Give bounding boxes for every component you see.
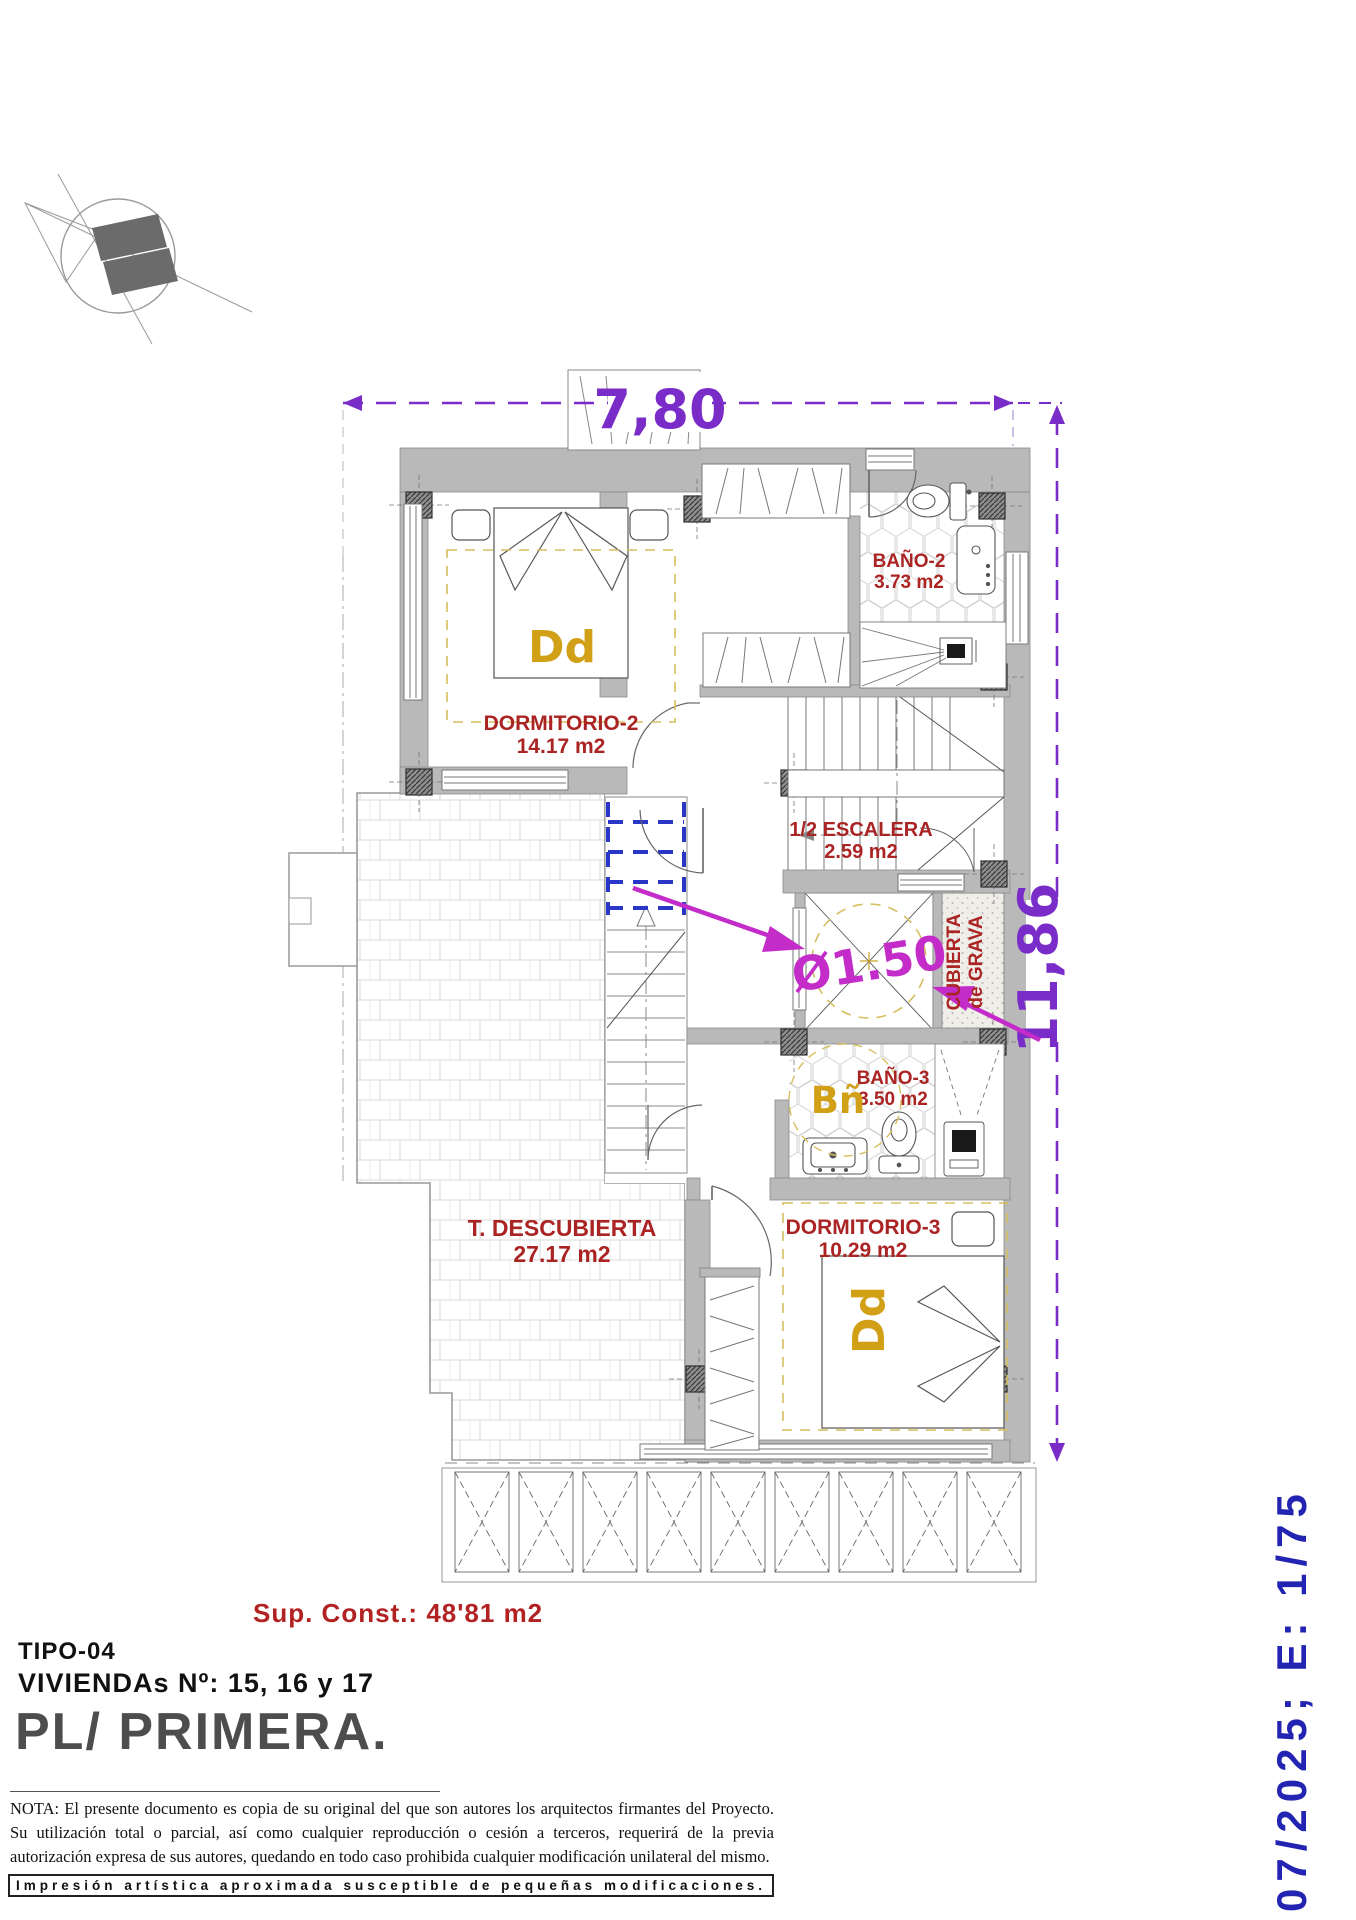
room-area-bano3: 3.50 m2 <box>858 1089 928 1110</box>
wardrobe <box>702 464 850 518</box>
legal-note: NOTA: El presente documento es copia de … <box>10 1797 774 1869</box>
tag-bano3: Bñ <box>811 1079 866 1122</box>
sink-bano3 <box>803 1138 867 1174</box>
room-label-dormitorio2: DORMITORIO-2 <box>484 712 639 735</box>
room-label-bano2: BAÑO-2 <box>873 550 946 572</box>
window <box>1006 552 1028 644</box>
toilet-bano2 <box>907 483 971 520</box>
shower-bano2 <box>860 622 1006 688</box>
room-area-bano2: 3.73 m2 <box>874 572 944 593</box>
window <box>640 1444 992 1459</box>
nightstand <box>630 510 668 540</box>
north-arrow-icon <box>25 174 252 344</box>
sink-vanity-bano2 <box>957 526 995 594</box>
window <box>404 504 422 700</box>
shower-bano3 <box>935 1044 1004 1178</box>
closet-dormitorio3 <box>700 1268 760 1450</box>
window <box>866 449 914 470</box>
wardrobe <box>703 633 850 687</box>
dimension-width-label: 7,80 <box>593 378 726 441</box>
nightstand <box>452 510 490 540</box>
room-area-dormitorio2: 14.17 m2 <box>517 735 606 758</box>
nightstand <box>952 1212 994 1246</box>
room-area-terraza: 27.17 m2 <box>513 1241 610 1267</box>
disclaimer-text: Impresión artística aproximada susceptib… <box>16 1878 766 1893</box>
window <box>442 770 568 790</box>
room-label-dormitorio3: DORMITORIO-3 <box>786 1216 941 1239</box>
window <box>898 874 964 891</box>
dwellings-label: VIVIENDAs Nº: 15, 16 y 17 <box>18 1668 374 1699</box>
room-area-escalera: 2.59 m2 <box>824 841 897 863</box>
tag-dormitorio3: Dd <box>844 1286 895 1354</box>
toilet-bano3 <box>879 1112 919 1173</box>
disclaimer-box: Impresión artística aproximada susceptib… <box>8 1874 774 1897</box>
room-label-terraza: T. DESCUBIERTA <box>468 1215 657 1241</box>
date-scale-label: 07/2025; E: 1/75 <box>1268 1392 1312 1912</box>
louver-panels <box>442 1463 1036 1582</box>
room-label-escalera: 1/2 ESCALERA <box>789 819 932 841</box>
room-area-dormitorio3: 10.29 m2 <box>819 1239 908 1262</box>
room-label-bano3: BAÑO-3 <box>857 1067 930 1089</box>
floor-plan-drawing: 7,80 11,86 Ø1.50 BAÑO-2 3.73 m2 DORMITOR… <box>0 0 1356 1920</box>
built-surface-label: Sup. Const.: 48'81 m2 <box>253 1598 543 1629</box>
nota-divider <box>10 1791 440 1792</box>
room-label-cubierta-2: de GRAVA <box>966 915 987 1009</box>
room-label-cubierta-1: CUBIERTA <box>944 913 965 1010</box>
floor-title: PL/ PRIMERA. <box>15 1702 389 1762</box>
tag-dormitorio2: Dd <box>528 622 596 673</box>
type-label: TIPO-04 <box>18 1638 116 1666</box>
floor-plan-sheet: 7,80 11,86 Ø1.50 BAÑO-2 3.73 m2 DORMITOR… <box>0 0 1356 1920</box>
